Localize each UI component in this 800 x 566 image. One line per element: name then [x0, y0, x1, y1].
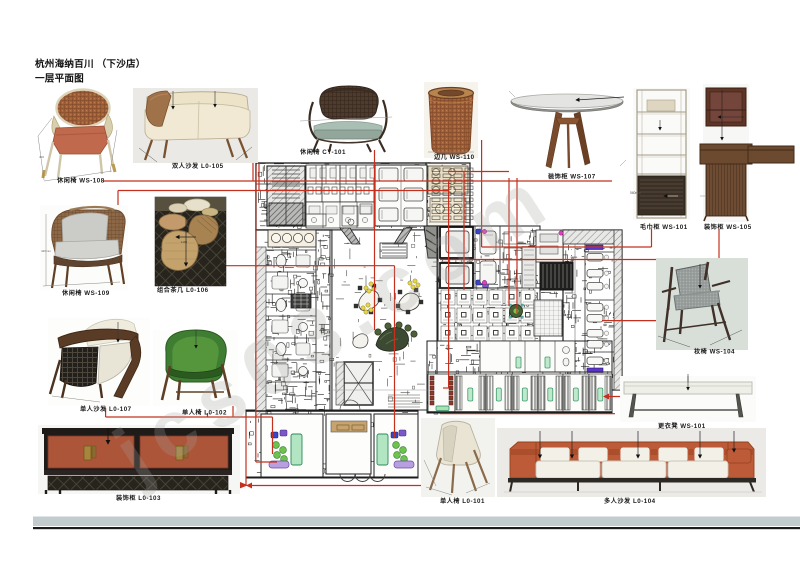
svg-text:组合茶几 L0-106: 组合茶几 L0-106 [157, 286, 209, 294]
svg-text:休闲椅 WS-108: 休闲椅 WS-108 [56, 177, 105, 185]
svg-text:装饰柜 WS-105: 装饰柜 WS-105 [703, 223, 752, 231]
svg-text:毛巾柜 WS-101: 毛巾柜 WS-101 [640, 223, 688, 231]
svg-text:休闲椅 WS-109: 休闲椅 WS-109 [61, 289, 110, 297]
svg-text:装饰柜 WS-107: 装饰柜 WS-107 [547, 173, 596, 181]
svg-text:双人沙发 L0-105: 双人沙发 L0-105 [171, 162, 224, 170]
svg-text:装饰柜 L0-103: 装饰柜 L0-103 [115, 494, 161, 502]
svg-text:妆椅 WS-104: 妆椅 WS-104 [694, 348, 735, 356]
svg-text:多人沙发 L0-104: 多人沙发 L0-104 [604, 497, 656, 505]
svg-text:560mm: 560mm [630, 191, 641, 195]
svg-text:边几 WS-110: 边几 WS-110 [433, 153, 475, 161]
svg-text:更衣凳 WS-101: 更衣凳 WS-101 [658, 422, 706, 430]
svg-text:420mm: 420mm [41, 249, 52, 253]
svg-text:休闲椅 CY-101: 休闲椅 CY-101 [299, 148, 346, 156]
svg-text:单人椅 L0-101: 单人椅 L0-101 [440, 497, 485, 505]
svg-text:1100: 1100 [181, 240, 187, 244]
svg-text:杭州海纳百川 （下沙店）: 杭州海纳百川 （下沙店） [35, 58, 146, 70]
svg-text:400: 400 [39, 155, 44, 159]
svg-text:一层平面图: 一层平面图 [35, 74, 84, 85]
